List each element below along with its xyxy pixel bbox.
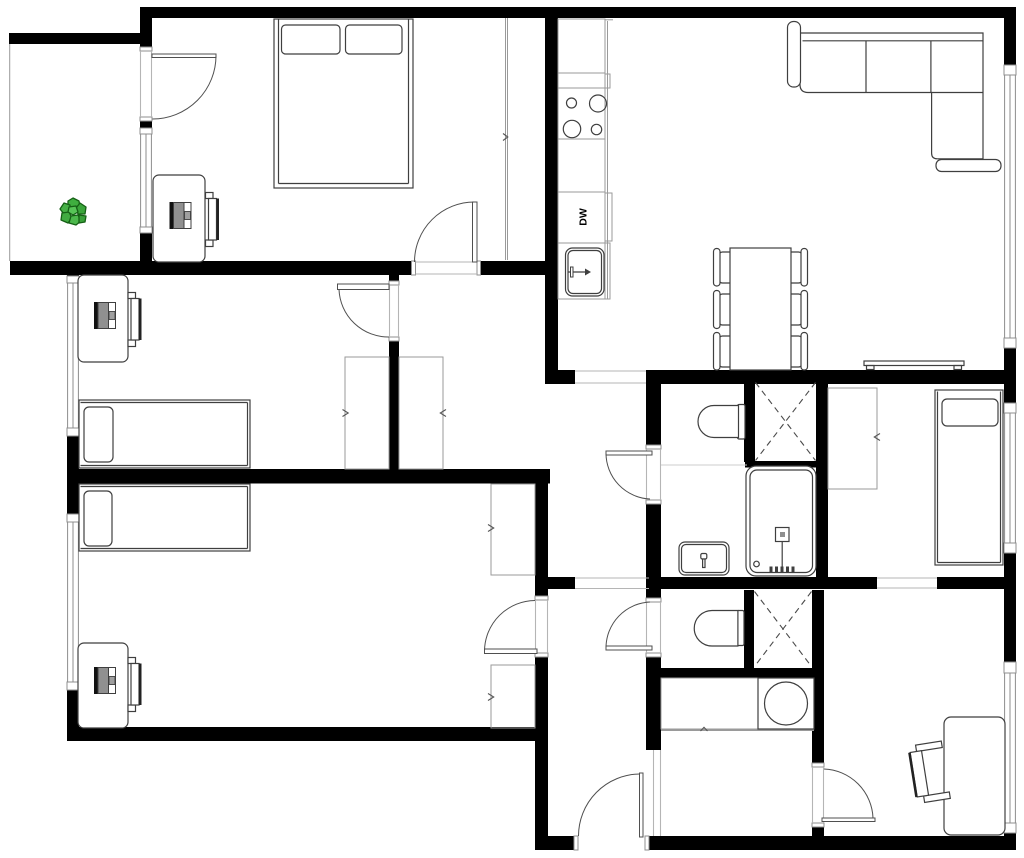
svg-text:DW: DW <box>578 208 590 226</box>
